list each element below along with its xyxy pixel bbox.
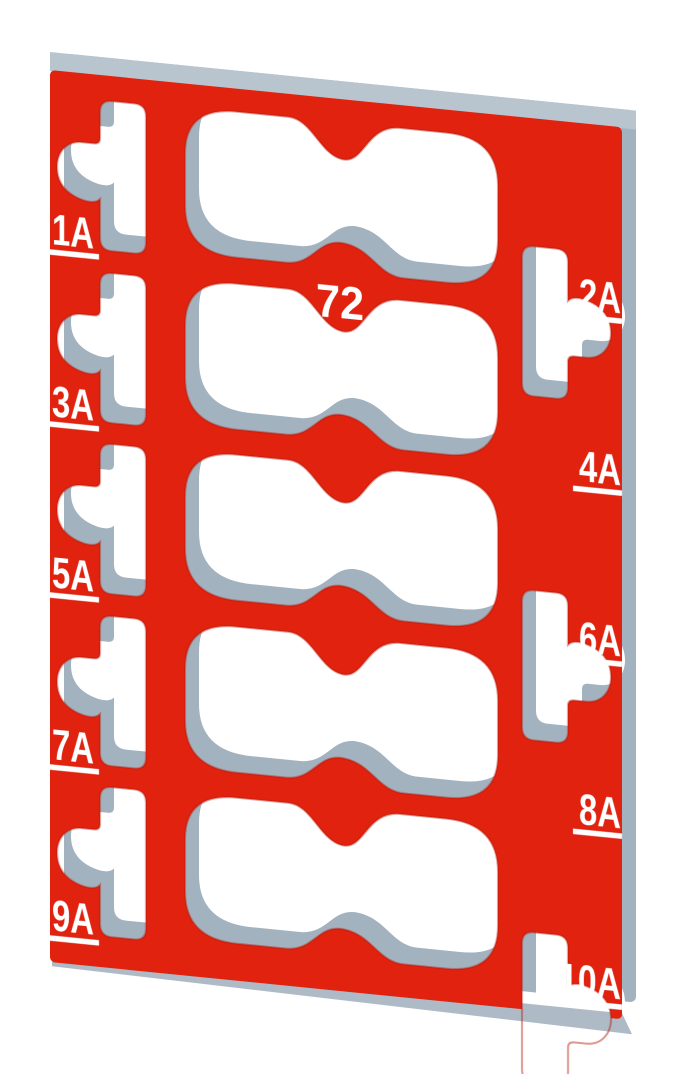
plate-face	[50, 70, 622, 1019]
center-marking: 72	[316, 274, 364, 331]
product-render: 1A 3A 5A 7A 9A 2A 4A 6A 8A 10A 72	[0, 0, 686, 1074]
marking-plate-svg: 1A 3A 5A 7A 9A 2A 4A 6A 8A 10A 72	[0, 0, 686, 1074]
